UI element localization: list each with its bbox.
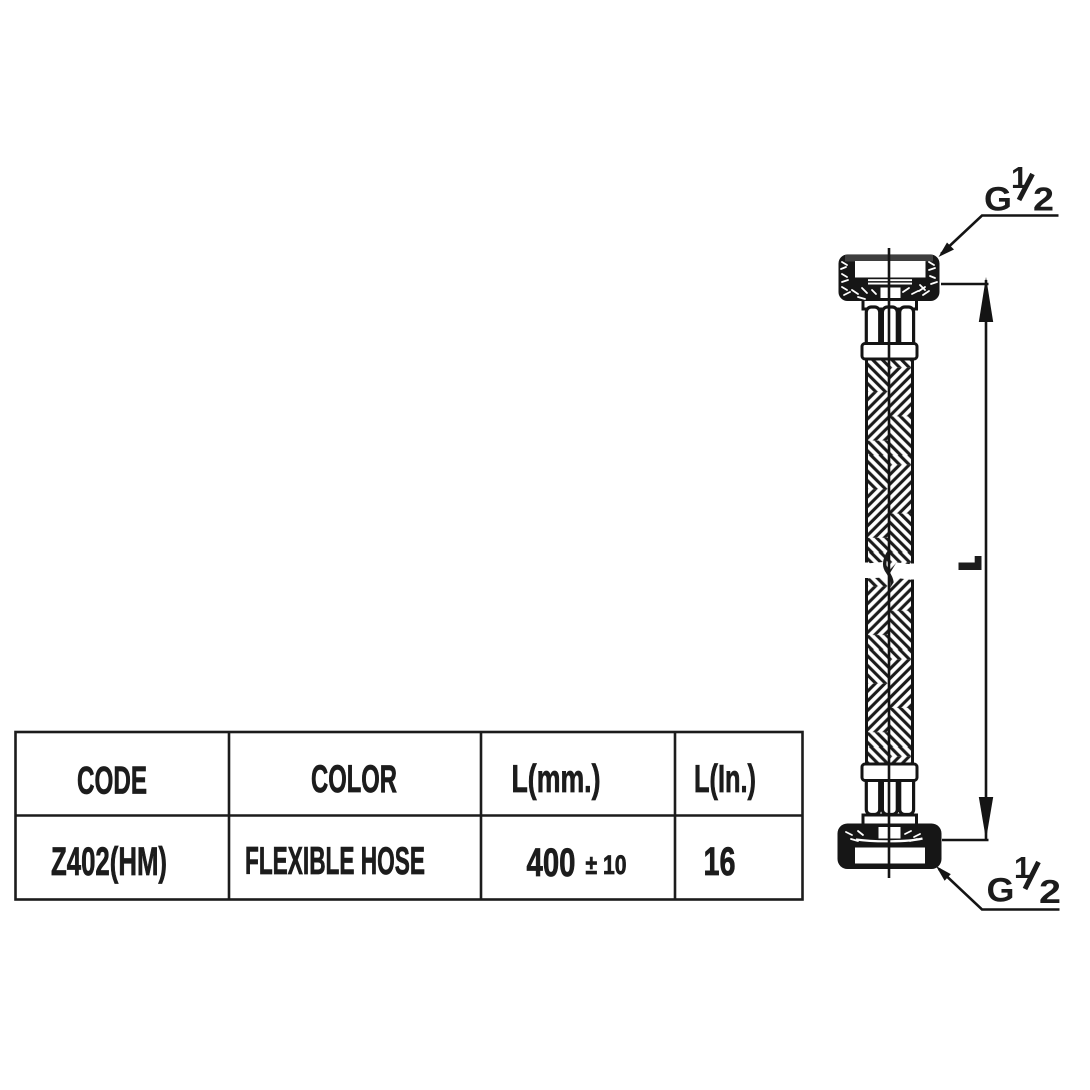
svg-text:Z402(HM): Z402(HM)	[51, 840, 167, 884]
svg-text:L(In.): L(In.)	[694, 758, 756, 801]
svg-text:± 10: ± 10	[586, 850, 627, 880]
svg-text:G: G	[987, 872, 1015, 910]
svg-text:L(mm.): L(mm.)	[512, 758, 601, 801]
svg-text:COLOR: COLOR	[311, 758, 397, 801]
svg-text:FLEXIBLE HOSE: FLEXIBLE HOSE	[245, 840, 425, 883]
svg-text:G: G	[984, 181, 1012, 219]
svg-text:400: 400	[527, 841, 576, 885]
svg-text:16: 16	[704, 840, 736, 884]
svg-text:2: 2	[1033, 181, 1054, 218]
svg-text:CODE: CODE	[77, 760, 147, 803]
svg-text:2: 2	[1039, 873, 1061, 910]
